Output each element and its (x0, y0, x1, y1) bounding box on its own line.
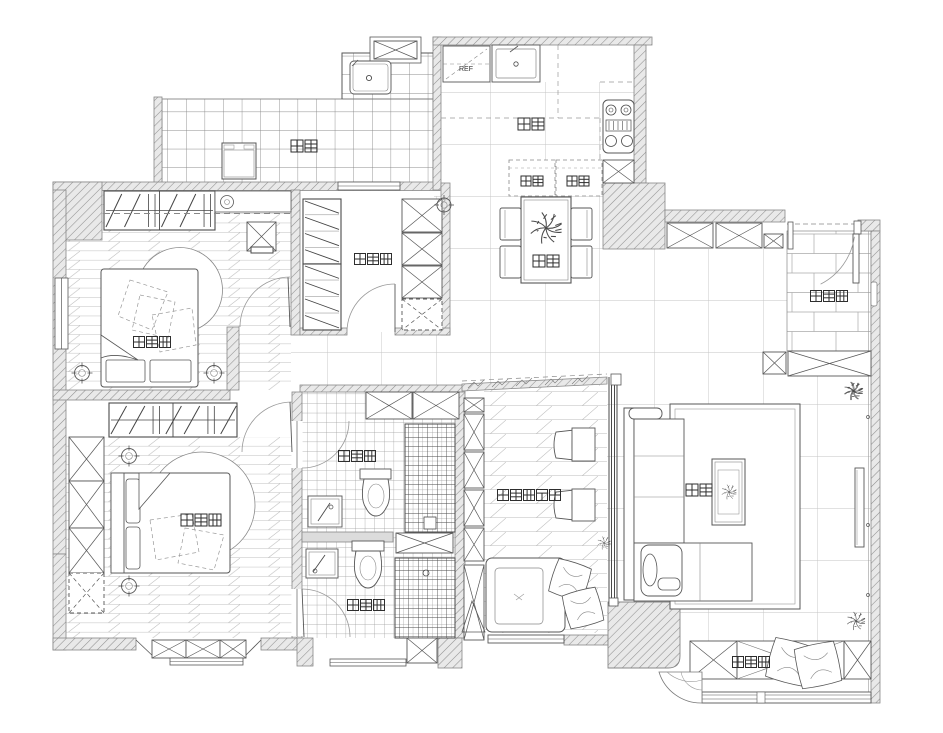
svg-text:REF: REF (459, 66, 473, 73)
